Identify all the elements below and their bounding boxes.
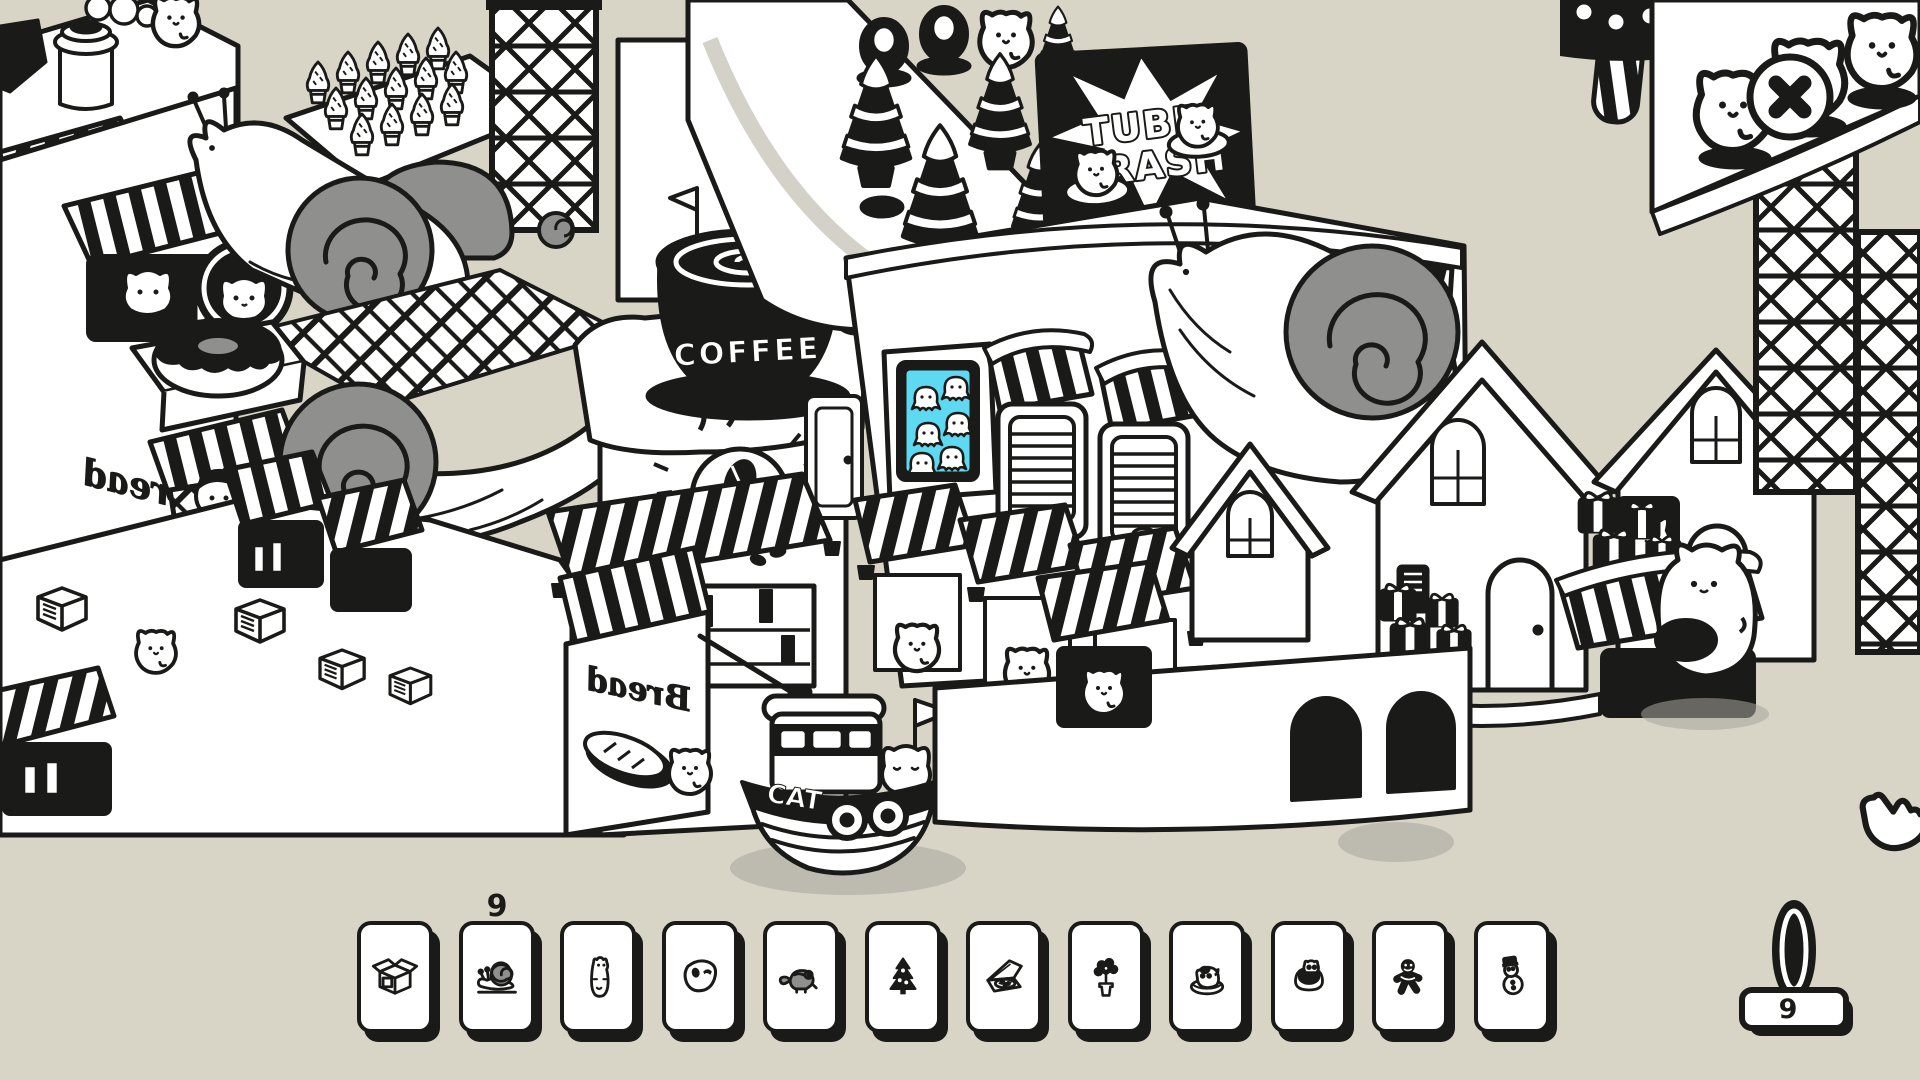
item-card-standing-cat[interactable]	[560, 921, 636, 1033]
item-card-pizza-box[interactable]	[966, 921, 1042, 1033]
ac-unit[interactable]	[38, 588, 86, 630]
lens-icon	[1775, 903, 1813, 997]
opera-mask-icon	[674, 951, 726, 1003]
item-card-potted-flowers[interactable]	[1068, 921, 1144, 1033]
item-card-opera-mask[interactable]	[662, 921, 738, 1033]
ac-unit[interactable]	[320, 650, 364, 689]
item-count: 9	[487, 889, 508, 924]
cat[interactable]	[1083, 670, 1125, 714]
town-illustration: Bread	[0, 0, 1920, 1080]
counter-value: 9	[1779, 994, 1798, 1025]
item-card-snail[interactable]: 9	[459, 921, 535, 1033]
potted-flowers-icon	[1080, 951, 1132, 1003]
cardboard-box-icon	[369, 951, 421, 1003]
item-card-cat-in-bed[interactable]	[1169, 921, 1245, 1033]
snowman-icon	[1486, 951, 1538, 1003]
pizza-box-icon	[978, 951, 1030, 1003]
item-card-cardboard-box[interactable]	[357, 921, 433, 1033]
cat-window-blue[interactable]	[884, 344, 996, 500]
cat[interactable]	[124, 270, 173, 315]
awning	[960, 505, 1085, 582]
cat[interactable]	[153, 0, 199, 46]
cat[interactable]	[1847, 15, 1916, 88]
tree-cookie-icon	[877, 951, 929, 1003]
item-card-gingerbread-man[interactable]	[1372, 921, 1448, 1033]
item-card-snowman[interactable]	[1474, 921, 1550, 1033]
standing-cat-icon	[572, 951, 624, 1003]
chameleon-icon	[775, 951, 827, 1003]
game-screen: Bread	[0, 0, 1920, 1080]
big-cat-with-bread[interactable]	[1656, 545, 1755, 676]
wrong-guess-marker[interactable]	[1750, 57, 1830, 137]
ground-shadow	[1338, 822, 1454, 862]
item-card-tree-cookie[interactable]	[865, 921, 941, 1033]
item-card-hamster-in-pot[interactable]	[1271, 921, 1347, 1033]
item-card-chameleon[interactable]	[763, 921, 839, 1033]
snail-icon	[471, 951, 523, 1003]
remaining-counter: 9	[1722, 896, 1920, 1056]
ac-unit[interactable]	[236, 600, 284, 642]
gingerbread-man-icon	[1384, 951, 1436, 1003]
cat-in-bed-icon	[1181, 951, 1233, 1003]
hamster-in-pot-icon	[1283, 951, 1335, 1003]
cat[interactable]	[669, 750, 711, 794]
cat[interactable]	[136, 631, 176, 673]
x-icon	[1776, 83, 1804, 111]
arched-door	[1488, 560, 1552, 690]
ac-unit[interactable]	[390, 668, 431, 704]
bread-shop-lower: Bread	[560, 548, 711, 835]
cat[interactable]	[895, 625, 939, 672]
